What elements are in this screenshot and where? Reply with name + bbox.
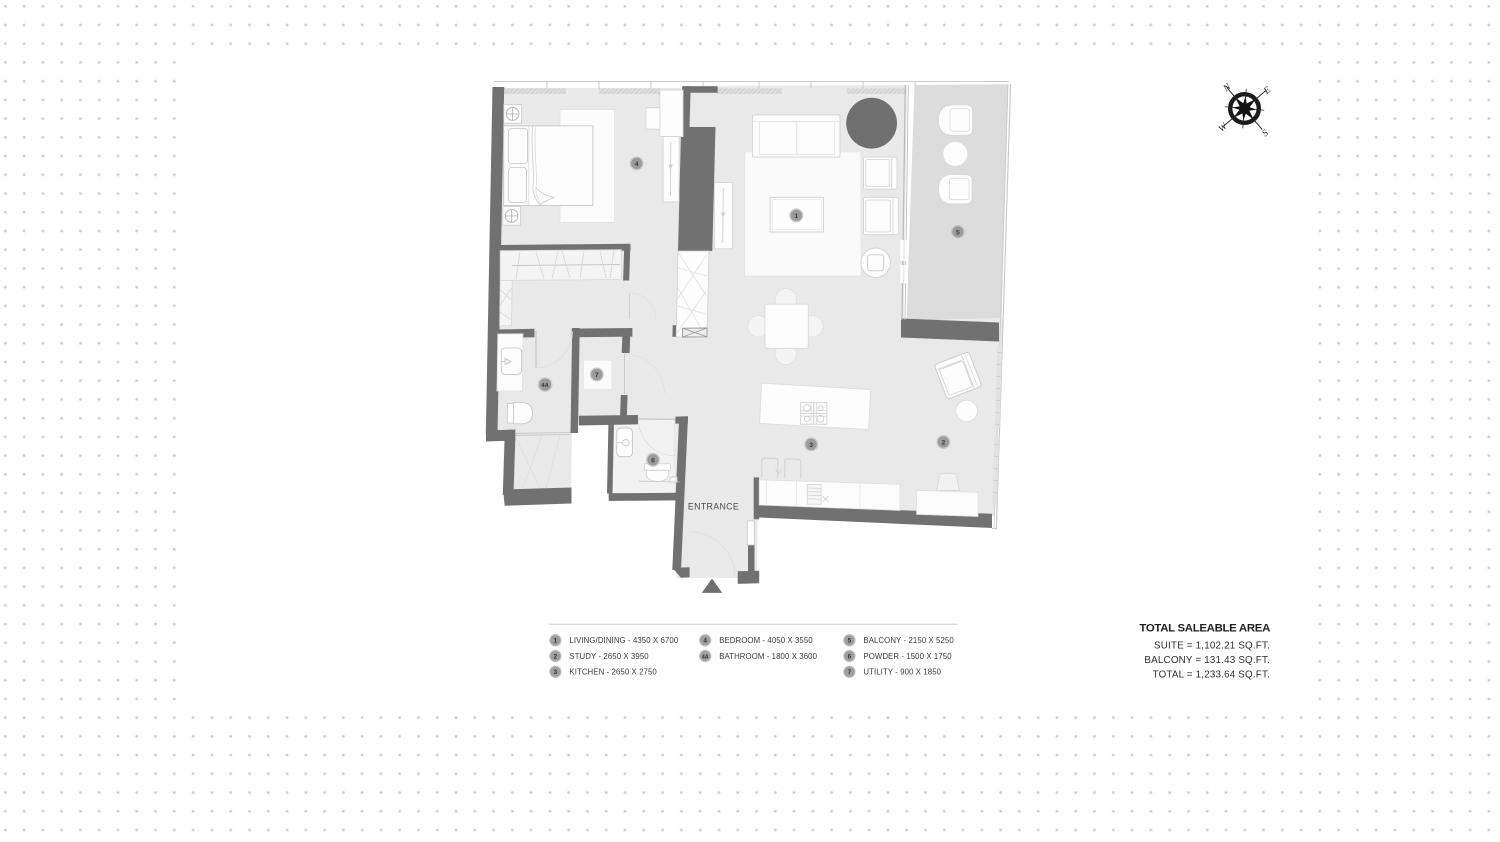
svg-text:BATHROOM - 1800 X 3600: BATHROOM - 1800 X 3600 xyxy=(719,652,817,661)
svg-text:5: 5 xyxy=(848,638,852,645)
svg-text:BALCONY - 2150 X 5250: BALCONY - 2150 X 5250 xyxy=(863,636,954,645)
svg-text:ENTRANCE: ENTRANCE xyxy=(688,501,739,511)
svg-text:4A: 4A xyxy=(541,383,549,389)
svg-text:KITCHEN - 2650 X 2750: KITCHEN - 2650 X 2750 xyxy=(569,668,657,677)
svg-text:BEDROOM - 4050 X 3550: BEDROOM - 4050 X 3550 xyxy=(719,636,813,645)
svg-text:7: 7 xyxy=(848,669,852,676)
svg-text:5: 5 xyxy=(956,229,960,236)
svg-text:6: 6 xyxy=(848,653,852,660)
svg-text:1: 1 xyxy=(794,213,798,220)
svg-text:TOTAL = 1,233.64 SQ.FT.: TOTAL = 1,233.64 SQ.FT. xyxy=(1153,670,1270,681)
svg-text:TOTAL SALEABLE AREA: TOTAL SALEABLE AREA xyxy=(1139,623,1270,635)
svg-text:4A: 4A xyxy=(702,654,709,660)
svg-text:3: 3 xyxy=(809,442,813,449)
svg-text:LIVING/DINING - 4350 X 6700: LIVING/DINING - 4350 X 6700 xyxy=(569,636,678,645)
svg-text:7: 7 xyxy=(595,372,599,379)
svg-text:1: 1 xyxy=(554,638,558,645)
svg-text:BALCONY = 131.43 SQ.FT.: BALCONY = 131.43 SQ.FT. xyxy=(1144,655,1270,666)
svg-text:4: 4 xyxy=(703,638,707,645)
svg-text:UTILITY - 900 X 1850: UTILITY - 900 X 1850 xyxy=(863,668,941,677)
svg-text:6: 6 xyxy=(651,457,655,464)
svg-text:3: 3 xyxy=(554,669,558,676)
svg-text:SUITE = 1,102.21 SQ.FT.: SUITE = 1,102.21 SQ.FT. xyxy=(1154,641,1270,652)
svg-text:STUDY - 2650 X 3950: STUDY - 2650 X 3950 xyxy=(569,652,649,661)
svg-text:2: 2 xyxy=(942,440,946,447)
svg-text:POWDER - 1500 X 1750: POWDER - 1500 X 1750 xyxy=(863,652,952,661)
svg-text:2: 2 xyxy=(554,653,558,660)
svg-text:4: 4 xyxy=(635,161,639,168)
